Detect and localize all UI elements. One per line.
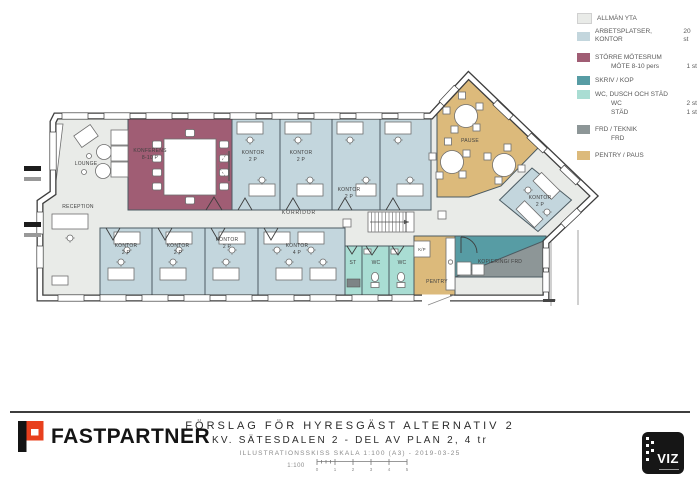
legend-swatch-skrivkop [577, 76, 590, 85]
viz-logo-underline [659, 469, 679, 471]
scale-tick-3: 3 [369, 467, 372, 472]
legend-label: MÖTE 8-10 pers [611, 63, 659, 71]
viz-logo-dot [651, 449, 654, 452]
label-reception: RECEPTION [62, 204, 94, 210]
viz-logo: VIZ [642, 432, 684, 474]
legend-count: 20 st [683, 28, 697, 44]
legend-swatch-kontor [577, 32, 590, 41]
viz-wordmark: VIZ [657, 451, 679, 466]
legend-subitem-wc: WC 2 st [577, 100, 697, 108]
label-kontor-a1: KONTOR [242, 150, 265, 156]
legend-label: FRD / TEKNIK [595, 126, 637, 134]
label-pentry: PENTRY [426, 279, 448, 285]
label-kontor-b3: KONTOR [216, 237, 239, 243]
legend-count: 1 st [687, 109, 697, 117]
label-lounge: LOUNGE [75, 161, 98, 167]
viz-logo-dot [646, 444, 649, 447]
viz-logo-dot [646, 451, 649, 454]
legend-item-motesrum: STÖRRE MÖTESRUM [577, 53, 697, 62]
legend-label: ARBETSPLATSER, KONTOR [595, 28, 678, 44]
title-separator-line [10, 411, 690, 413]
room-stad [345, 246, 362, 298]
scale-tick-4: 4 [387, 467, 390, 472]
label-kontor-a2: KONTOR [290, 150, 313, 156]
scale-tick-0: 0 [315, 467, 318, 472]
label-kontor-b1: KONTOR [115, 243, 138, 249]
scale-ruler: 0 1 2 3 4 5 [313, 459, 413, 472]
label-kp: K/P [418, 247, 426, 252]
column [343, 219, 351, 227]
scale-tick-5: 5 [405, 467, 408, 472]
label-korridor: KORRIDOR [282, 210, 316, 216]
legend-label: WC, DUSCH OCH STÄD [595, 91, 668, 99]
legend-item-kontor: ARBETSPLATSER, KONTOR 20 st [577, 28, 697, 44]
title-line-2: KV. SÄTESDALEN 2 - DEL AV PLAN 2, 4 tr [0, 435, 700, 446]
viz-logo-dot [646, 437, 649, 440]
label-kontor-b2: KONTOR [167, 243, 190, 249]
title-line-1: FÖRSLAG FÖR HYRESGÄST ALTERNATIV 2 [0, 420, 700, 432]
legend-label: SKRIV / KOP [595, 77, 634, 85]
legend-count: 1 st [687, 63, 697, 71]
title-line-3: ILLUSTRATIONSSKISS SKALA 1:100 (A3) - 20… [0, 450, 700, 457]
label-kontor-diag: KONTOR [529, 195, 552, 201]
legend-label: WC [611, 100, 622, 108]
label-kontor-a2-cap: 2 P [297, 157, 306, 163]
label-kopiering: KOPIERING/ FRD [478, 259, 522, 265]
legend-label: STÖRRE MÖTESRUM [595, 54, 662, 62]
legend: ALLMÄN YTA ARBETSPLATSER, KONTOR 20 st S… [577, 13, 697, 160]
legend-subitem-frd: FRD [577, 135, 697, 143]
viz-logo-dot [646, 458, 649, 461]
label-st: ST [350, 260, 357, 266]
legend-swatch-allman [577, 13, 592, 24]
scale-tick-1: 1 [333, 467, 336, 472]
scale-bar: 1:100 0 1 2 3 4 5 [0, 459, 700, 472]
label-kontor-b4: KONTOR [286, 243, 309, 249]
label-kontor-diag-cap: 2 P [536, 202, 545, 208]
legend-item-skrivkop: SKRIV / KOP [577, 76, 697, 85]
label-pause: PAUSE [461, 138, 479, 144]
legend-swatch-frd [577, 125, 590, 134]
viz-logo-dot [651, 441, 654, 444]
legend-subitem-stad: STÄD 1 st [577, 109, 697, 117]
label-kontor-b3-cap: 2 P [223, 244, 232, 250]
staircase [368, 212, 414, 232]
scale-tick-2: 2 [351, 467, 354, 472]
label-kontor-b2-cap: 2 P [174, 250, 183, 256]
scale-label: 1:100 [287, 463, 305, 469]
legend-subitem-mote: MÖTE 8-10 pers 1 st [577, 63, 697, 71]
legend-item-allman: ALLMÄN YTA [577, 13, 697, 24]
legend-item-pentry: PENTRY / PAUS [577, 151, 697, 160]
label-kontor-a1-cap: 2 P [249, 157, 258, 163]
legend-item-wc: WC, DUSCH OCH STÄD [577, 90, 697, 99]
label-kontor-b1-cap: 2 P [122, 250, 131, 256]
legend-count: 2 st [687, 100, 697, 108]
label-wc-1: WC [372, 260, 381, 266]
label-wc-2: WC [398, 260, 407, 266]
legend-label: FRD [611, 135, 624, 143]
legend-swatch-pentry [577, 151, 590, 160]
column [438, 211, 446, 219]
legend-item-frd: FRD / TEKNIK [577, 125, 697, 134]
legend-label: STÄD [611, 109, 628, 117]
legend-swatch-motesrum [577, 53, 590, 62]
label-kontor-a3-cap: 2 P [345, 194, 354, 200]
legend-label: PENTRY / PAUS [595, 152, 644, 160]
legend-swatch-wc [577, 90, 590, 99]
title-block: FÖRSLAG FÖR HYRESGÄST ALTERNATIV 2 KV. S… [0, 420, 700, 472]
label-kontor-a3: KONTOR [338, 187, 361, 193]
label-konferens: KONFERENS [133, 148, 167, 154]
label-kontor-b4-cap: 4 P [293, 250, 302, 256]
legend-label: ALLMÄN YTA [597, 15, 637, 23]
label-konferens-cap: 8-10 P [142, 155, 159, 161]
